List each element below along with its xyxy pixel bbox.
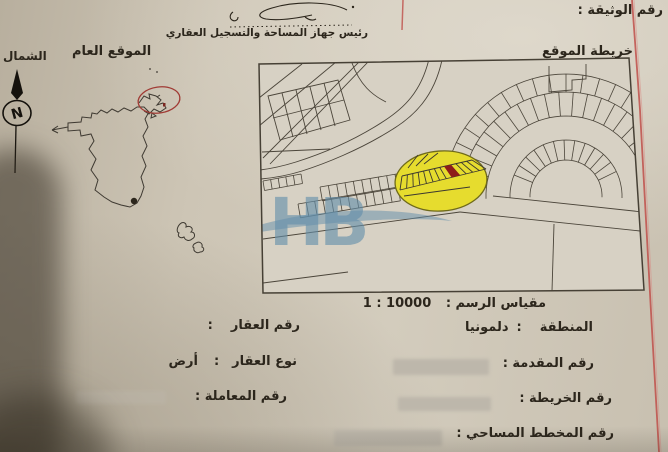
signature-icon xyxy=(230,3,354,27)
field-application-number: رقم المقدمة : xyxy=(503,356,594,371)
hb-watermark: HB xyxy=(269,190,365,256)
region-value: دلمونيا xyxy=(465,320,509,335)
signature-title: رئيس جهاز المساحة والتسجيل العقاري xyxy=(196,27,368,39)
redacted-transaction-number xyxy=(76,391,166,404)
field-survey-plan-number: رقم المخطط المساحي : xyxy=(456,426,614,441)
field-transaction-number: رقم المعاملة : xyxy=(195,389,287,404)
field-property-number: رقم العقار: xyxy=(200,318,300,333)
property-number-separator: : xyxy=(208,318,213,333)
causeway-arrow-icon xyxy=(52,126,68,133)
compass-north-icon: N xyxy=(3,69,31,173)
property-type-label: نوع العقار xyxy=(232,354,297,369)
region-separator: : xyxy=(517,320,522,335)
compass-letter: N xyxy=(10,105,25,123)
survey-certificate-photo: N xyxy=(0,0,668,452)
field-region: المنطقة:دلمونيا xyxy=(465,320,593,335)
property-type-separator: : xyxy=(214,354,219,369)
general-location-title: الموقع العام xyxy=(72,44,151,59)
region-label: المنطقة xyxy=(540,320,593,335)
bahrain-outline-map xyxy=(52,68,204,253)
site-map-title: خريطة الموقع xyxy=(542,44,633,59)
property-type-value: أرض xyxy=(169,354,198,369)
north-label: الشمال xyxy=(3,49,47,63)
field-property-type: نوع العقار:أرض xyxy=(169,354,297,369)
scale-row: مقياس الرسم : 1 : 10000 xyxy=(363,296,546,311)
property-number-label: رقم العقار xyxy=(231,318,300,333)
redacted-survey-plan-number xyxy=(334,430,442,446)
scale-value: 1 : 10000 xyxy=(363,296,432,311)
redacted-application-number xyxy=(393,359,489,375)
field-map-number: رقم الخريطة : xyxy=(519,391,612,406)
document-number-label: رقم الوثيقة : xyxy=(578,3,663,18)
scale-label: مقياس الرسم : xyxy=(446,296,546,311)
redacted-map-number xyxy=(398,397,491,411)
